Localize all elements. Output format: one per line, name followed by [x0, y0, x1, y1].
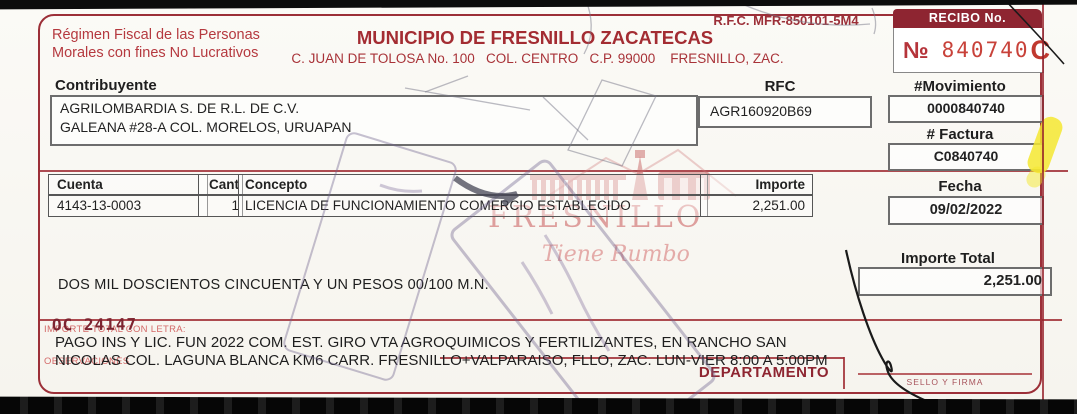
factura-label: # Factura	[880, 126, 1040, 143]
oc-stamp-text: OC 24147	[52, 315, 137, 335]
fecha-value-box: 09/02/2022	[888, 196, 1044, 225]
sello-firma-label: SELLO Y FIRMA	[858, 377, 1032, 387]
cant-cell: 1	[198, 195, 243, 217]
concepto-header: Concepto	[238, 174, 708, 195]
cuenta-cell: 4143-13-0003	[48, 195, 208, 217]
regimen-line-1: Régimen Fiscal de las Personas	[52, 26, 260, 44]
numero-symbol: №	[903, 37, 929, 64]
sello-firma-line	[858, 373, 1032, 375]
movimiento-label: #Movimiento	[880, 78, 1040, 95]
importe-cell: 2,251.00	[700, 195, 813, 217]
cant-header: Cant	[198, 174, 243, 195]
recibo-no-tab: RECIBO No.	[893, 9, 1042, 28]
scanned-receipt: Régimen Fiscal de las Personas Morales c…	[0, 0, 1077, 414]
cuenta-header: Cuenta	[48, 174, 208, 195]
importe-header: Importe	[700, 174, 813, 195]
departamento-box-divider	[843, 357, 845, 389]
movimiento-value-box: 0000840740	[888, 95, 1044, 123]
rfc-label: RFC	[700, 78, 860, 95]
contribuyente-address: GALEANA #28-A COL. MORELOS, URUAPAN	[60, 118, 688, 137]
scan-bottom-edge	[0, 397, 1077, 414]
municipality-title: MUNICIPIO DE FRESNILLO ZACATECAS	[260, 27, 810, 49]
scan-top-edge	[0, 0, 1077, 9]
amount-in-words: DOS MIL DOSCIENTOS CINCUENTA Y UN PESOS …	[58, 277, 489, 293]
rfc-header: R.F.C. MFR-850101-5M4	[692, 13, 880, 28]
fecha-label: Fecha	[880, 178, 1040, 195]
recibo-number: 840740	[942, 38, 1030, 62]
contribuyente-name: AGRILOMBARDIA S. DE R.L. DE C.V.	[60, 99, 688, 118]
observaciones-line-2: NICOLAS COL. LAGUNA BLANCA KM6 CARR. FRE…	[55, 352, 828, 369]
recibo-number-box: № 840740 C	[893, 28, 1044, 73]
importe-total-label: Importe Total	[860, 250, 1036, 267]
regimen-line-2: Morales con fines No Lucrativos	[52, 44, 260, 62]
scan-red-line	[1042, 0, 1044, 414]
importe-total-box: 2,251.00	[858, 267, 1052, 296]
factura-value-box: C0840740	[888, 143, 1044, 171]
contribuyente-label: Contribuyente	[55, 77, 157, 94]
municipality-address: C. JUAN DE TOLOSA No. 100 COL. CENTRO C.…	[255, 51, 820, 66]
recibo-series: C	[1031, 35, 1051, 66]
regimen-fiscal-text: Régimen Fiscal de las Personas Morales c…	[52, 26, 260, 62]
rfc-value-box: AGR160920B69	[698, 96, 872, 128]
